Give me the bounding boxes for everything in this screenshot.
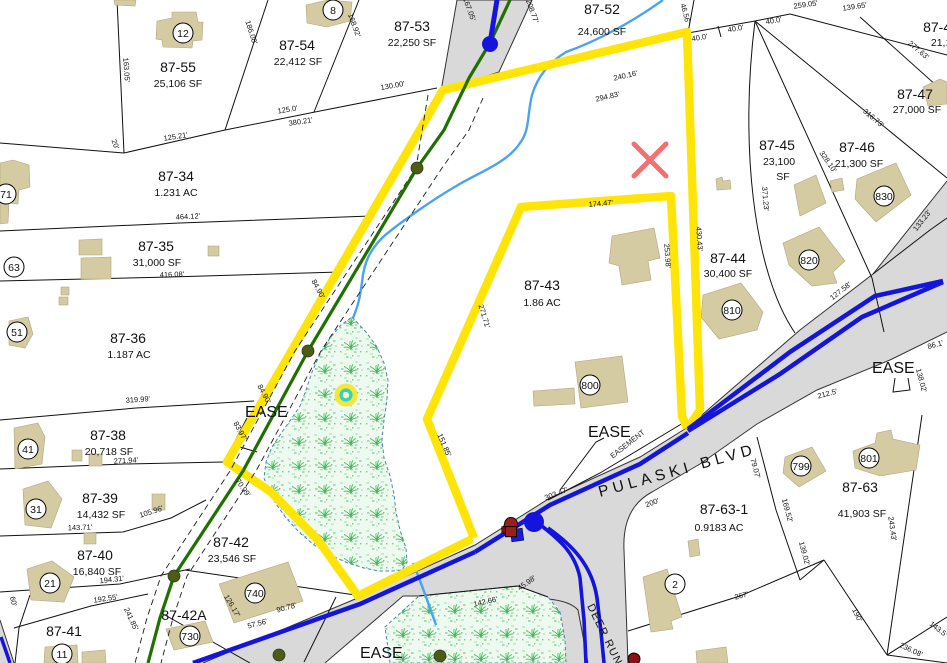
svg-text:1.86 AC: 1.86 AC [523,297,561,309]
svg-text:22,250 SF: 22,250 SF [388,37,436,49]
svg-text:2: 2 [672,579,678,591]
svg-text:464.12': 464.12' [175,211,200,221]
svg-text:319.99': 319.99' [125,394,151,405]
svg-text:EASE: EASE [245,404,288,421]
svg-text:87-35: 87-35 [138,238,174,254]
svg-text:87-41: 87-41 [46,623,82,639]
svg-text:71: 71 [0,189,12,201]
svg-text:416.08': 416.08' [160,270,185,280]
svg-text:1.231 AC: 1.231 AC [154,187,198,199]
svg-text:143.71': 143.71' [68,523,93,533]
svg-text:0.9183 AC: 0.9183 AC [694,522,743,534]
svg-text:22,412 SF: 22,412 SF [274,56,322,68]
svg-text:21: 21 [44,578,56,590]
svg-text:87-45: 87-45 [759,137,795,153]
svg-text:87-63-1: 87-63-1 [700,501,748,517]
svg-text:87-36: 87-36 [110,330,146,346]
svg-text:87-52: 87-52 [584,1,620,17]
svg-text:830: 830 [875,191,893,203]
svg-text:23,100: 23,100 [763,156,795,168]
svg-text:87-47: 87-47 [897,86,933,102]
svg-text:271.94': 271.94' [113,455,138,465]
svg-text:EASE: EASE [588,424,631,441]
svg-text:21,10: 21,10 [931,37,947,49]
svg-text:87-48: 87-48 [923,19,947,35]
svg-text:EASE: EASE [872,360,915,377]
svg-text:51: 51 [11,327,23,339]
svg-text:799: 799 [792,461,810,473]
svg-text:30,400 SF: 30,400 SF [704,268,752,280]
svg-text:820: 820 [800,255,818,267]
svg-text:87-34: 87-34 [158,168,194,184]
svg-text:87-55: 87-55 [160,59,196,75]
svg-text:12: 12 [177,28,189,40]
svg-text:87-54: 87-54 [279,37,315,53]
svg-text:41,903 SF: 41,903 SF [838,508,886,520]
svg-text:253.98': 253.98' [662,243,673,269]
svg-text:800: 800 [581,380,599,392]
svg-text:24,600 SF: 24,600 SF [578,26,626,38]
svg-text:87-44: 87-44 [710,250,746,266]
svg-text:730: 730 [181,631,199,643]
svg-text:8: 8 [330,5,336,17]
svg-text:430.43': 430.43' [694,226,705,252]
svg-text:87-38: 87-38 [90,427,126,443]
svg-text:87-42: 87-42 [213,534,249,550]
svg-text:810: 810 [723,305,741,317]
svg-text:63: 63 [8,262,20,274]
svg-text:21,300 SF: 21,300 SF [835,158,883,170]
svg-text:87-63: 87-63 [842,479,878,495]
svg-text:801: 801 [860,453,878,465]
svg-text:11: 11 [57,649,68,661]
svg-text:87-46: 87-46 [839,139,875,155]
svg-text:SF: SF [776,171,789,183]
svg-text:87-39: 87-39 [82,490,118,506]
svg-text:740: 740 [246,588,264,600]
svg-text:163.05': 163.05' [121,57,132,83]
svg-text:27,000 SF: 27,000 SF [893,104,941,116]
svg-text:87-53: 87-53 [394,18,430,34]
svg-text:23,546 SF: 23,546 SF [208,553,256,565]
svg-text:41: 41 [22,444,34,456]
svg-text:87-43: 87-43 [524,277,560,293]
svg-text:14,432 SF: 14,432 SF [77,509,125,521]
svg-text:31,000 SF: 31,000 SF [133,257,181,269]
svg-text:EASE: EASE [360,645,403,662]
svg-text:87-42A: 87-42A [161,607,207,623]
svg-text:31: 31 [30,504,42,516]
svg-text:1.187 AC: 1.187 AC [107,349,151,361]
svg-text:87-40: 87-40 [77,547,113,563]
svg-text:25,106 SF: 25,106 SF [154,78,202,90]
